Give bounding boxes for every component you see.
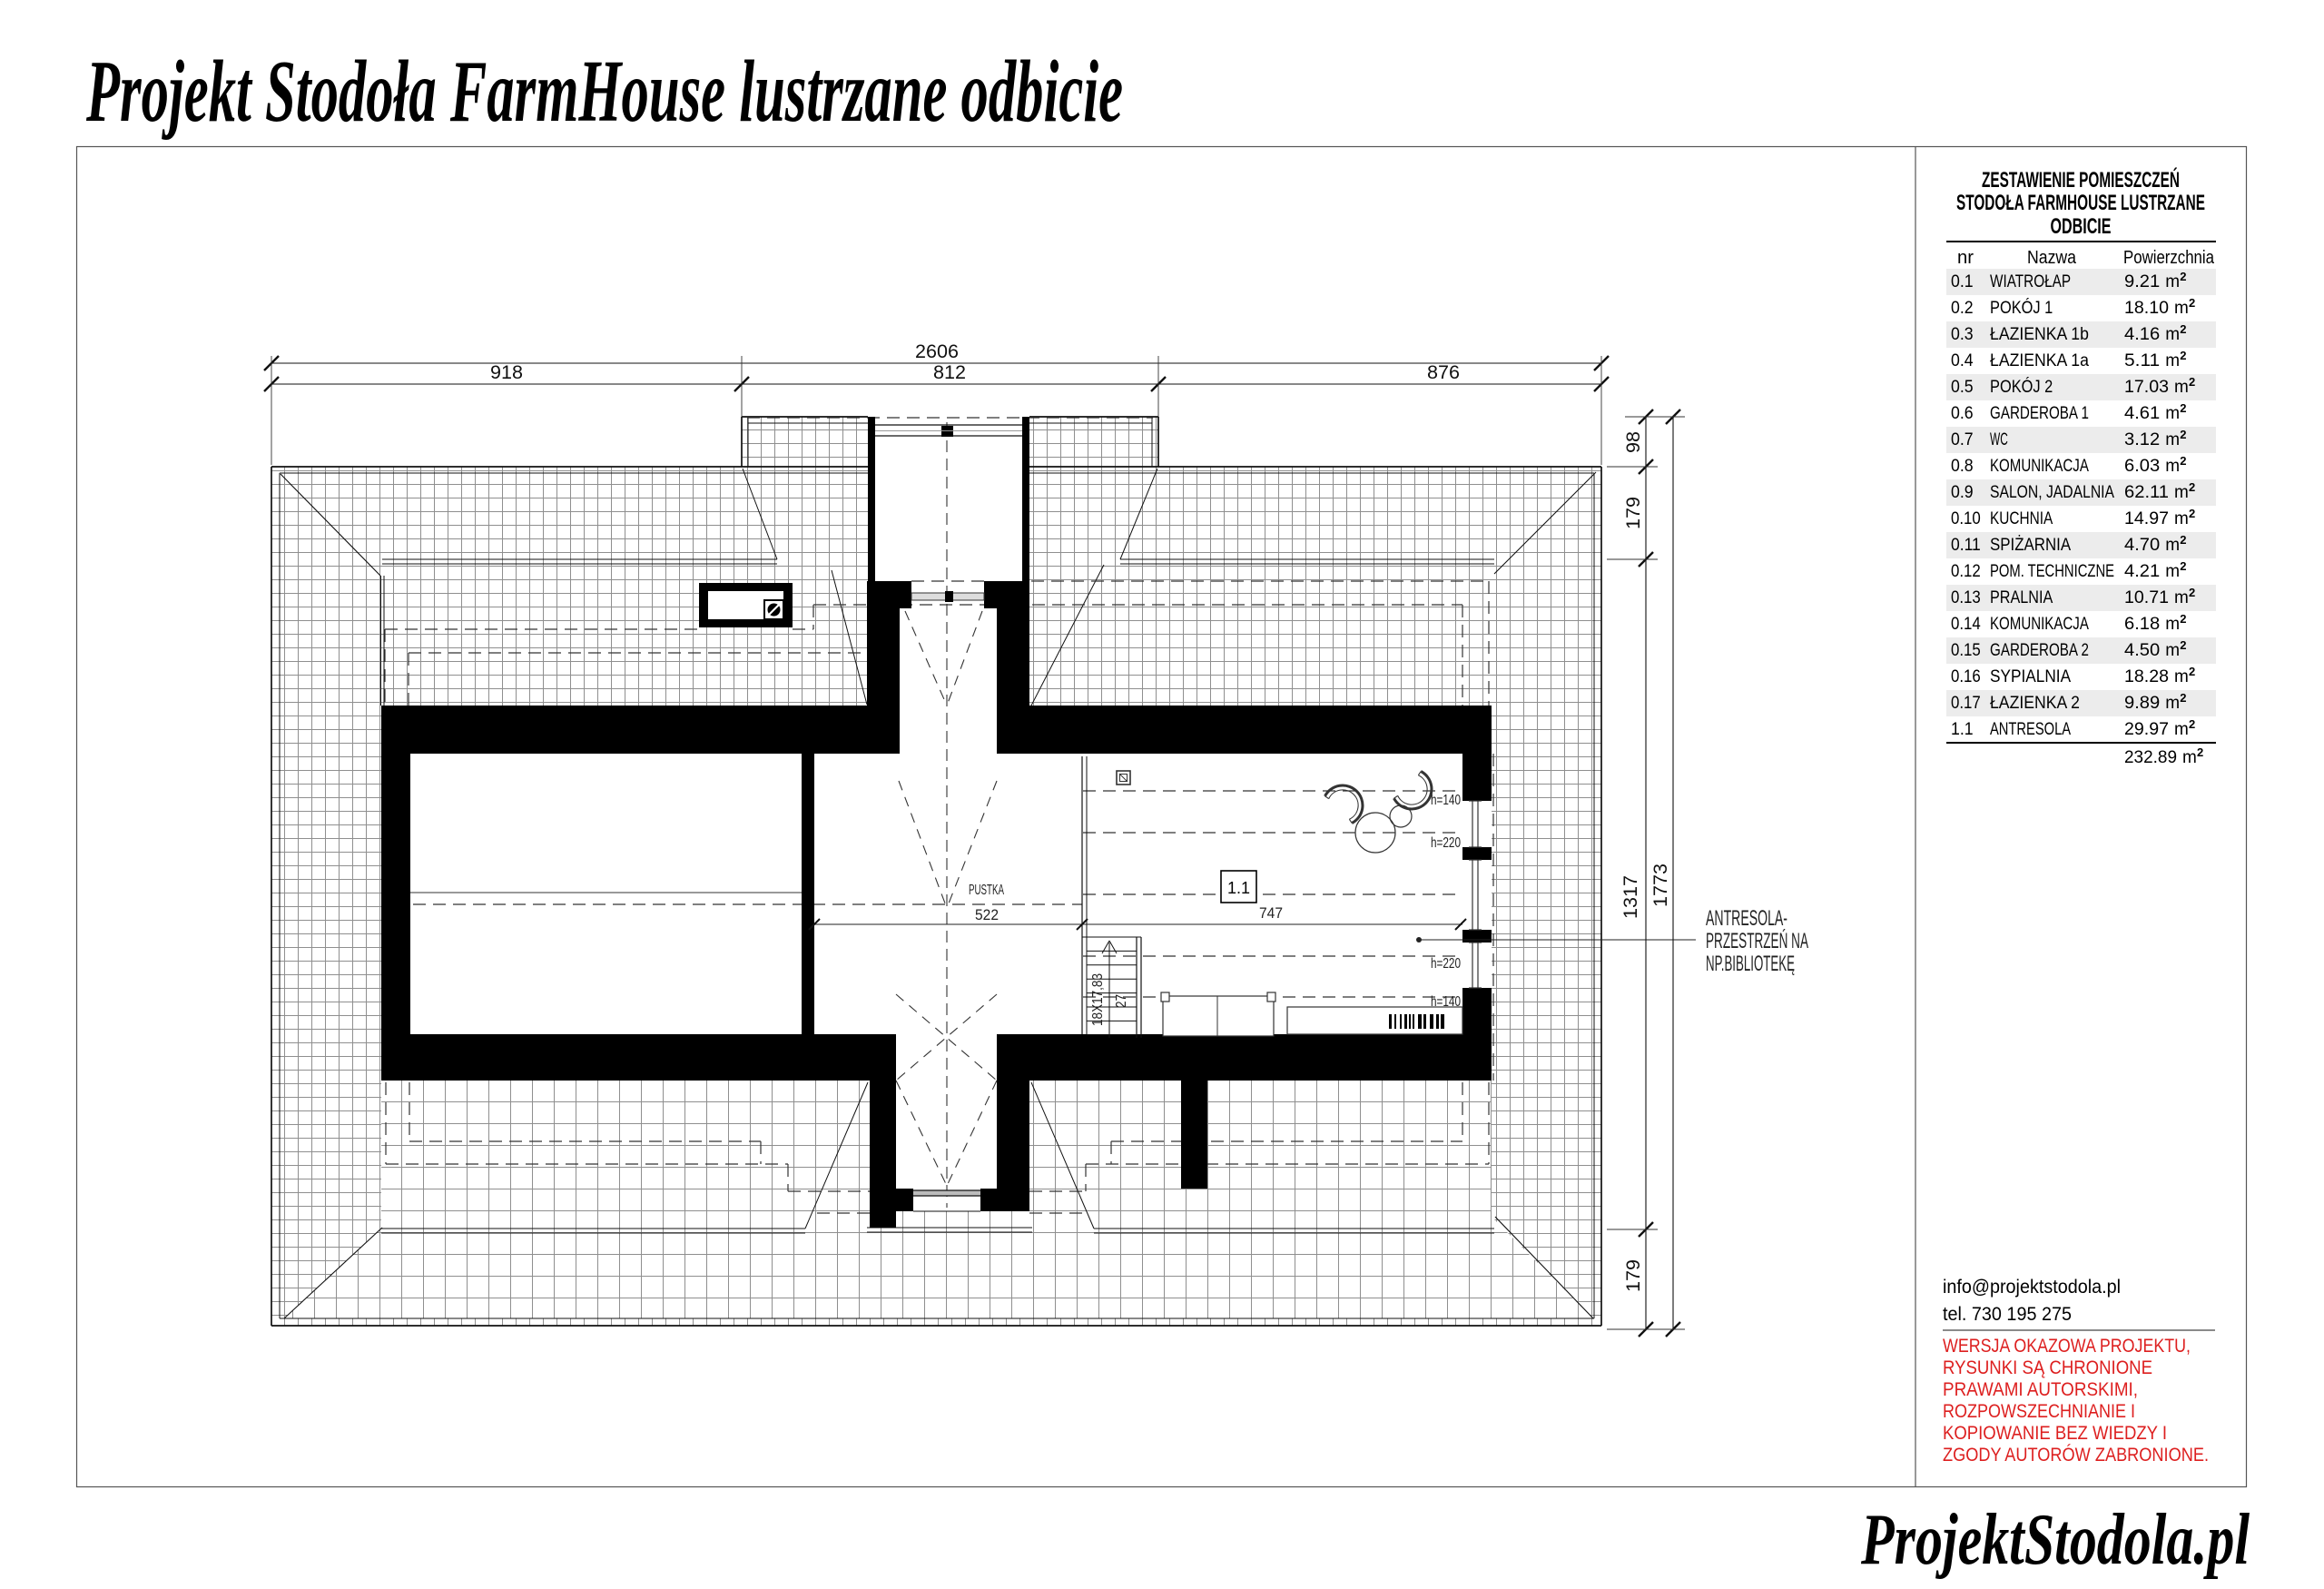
svg-text:9.89: 9.89 xyxy=(2124,694,2160,713)
svg-text:1.1: 1.1 xyxy=(1227,879,1250,897)
svg-text:2: 2 xyxy=(2189,480,2195,494)
svg-text:62.11: 62.11 xyxy=(2124,483,2169,502)
svg-text:KOMUNIKACJA: KOMUNIKACJA xyxy=(1990,457,2089,476)
svg-text:18.10: 18.10 xyxy=(2124,299,2169,318)
svg-text:2: 2 xyxy=(2180,322,2186,336)
svg-text:WC: WC xyxy=(1990,430,2008,449)
svg-text:2: 2 xyxy=(2180,454,2186,468)
svg-text:29.97: 29.97 xyxy=(2124,720,2169,739)
svg-text:NP.BIBLIOTEKĘ: NP.BIBLIOTEKĘ xyxy=(1706,952,1795,976)
svg-text:918: 918 xyxy=(490,362,523,383)
svg-text:ZESTAWIENIE POMIESZCZEŃ: ZESTAWIENIE POMIESZCZEŃ xyxy=(1982,167,2180,192)
svg-text:2: 2 xyxy=(2180,612,2186,626)
svg-text:179: 179 xyxy=(1623,497,1644,529)
svg-text:m: m xyxy=(2165,615,2180,634)
svg-text:522: 522 xyxy=(975,906,999,923)
svg-text:2: 2 xyxy=(2189,296,2195,310)
svg-text:PRZESTRZEŃ NA: PRZESTRZEŃ NA xyxy=(1706,929,1808,953)
svg-text:m: m xyxy=(2165,351,2180,370)
svg-text:tel. 730 195 275: tel. 730 195 275 xyxy=(1943,1304,2072,1325)
svg-text:PRALNIA: PRALNIA xyxy=(1990,588,2053,607)
svg-text:KOPIOWANIE BEZ WIEDZY I: KOPIOWANIE BEZ WIEDZY I xyxy=(1943,1423,2167,1444)
svg-text:info@projektstodola.pl: info@projektstodola.pl xyxy=(1943,1277,2121,1298)
svg-text:1317: 1317 xyxy=(1620,875,1641,919)
svg-text:2: 2 xyxy=(2180,428,2186,441)
svg-text:10.71: 10.71 xyxy=(2124,588,2169,607)
svg-text:WIATROŁAP: WIATROŁAP xyxy=(1990,272,2071,291)
svg-text:h=220: h=220 xyxy=(1431,956,1461,972)
svg-text:POKÓJ 1: POKÓJ 1 xyxy=(1990,298,2053,318)
svg-text:ROZPOWSZECHNIANIE I: ROZPOWSZECHNIANIE I xyxy=(1943,1401,2135,1422)
svg-text:179: 179 xyxy=(1623,1259,1644,1292)
svg-text:27: 27 xyxy=(1114,994,1129,1008)
svg-text:2: 2 xyxy=(2180,533,2186,547)
svg-text:2: 2 xyxy=(2189,665,2195,678)
svg-text:3.12: 3.12 xyxy=(2124,430,2160,449)
svg-text:2: 2 xyxy=(2180,638,2186,652)
svg-text:2: 2 xyxy=(2189,375,2195,389)
svg-text:0.4: 0.4 xyxy=(1951,351,1974,370)
svg-text:m: m xyxy=(2174,588,2189,607)
svg-text:0.16: 0.16 xyxy=(1951,667,1981,686)
svg-text:0.13: 0.13 xyxy=(1951,588,1981,607)
svg-text:6.03: 6.03 xyxy=(2124,457,2160,476)
svg-text:6.18: 6.18 xyxy=(2124,615,2160,634)
svg-text:SYPIALNIA: SYPIALNIA xyxy=(1990,667,2071,686)
svg-text:1.1: 1.1 xyxy=(1951,720,1974,739)
svg-text:876: 876 xyxy=(1427,362,1460,383)
svg-text:m: m xyxy=(2165,272,2180,291)
svg-text:Nazwa: Nazwa xyxy=(2027,248,2077,268)
svg-text:0.3: 0.3 xyxy=(1951,325,1974,344)
svg-text:2: 2 xyxy=(2189,586,2195,599)
svg-text:m: m xyxy=(2165,457,2180,476)
svg-text:Powierzchnia: Powierzchnia xyxy=(2123,248,2215,268)
svg-text:4.21: 4.21 xyxy=(2124,562,2160,581)
svg-text:GARDEROBA 2: GARDEROBA 2 xyxy=(1990,641,2089,660)
svg-text:0.2: 0.2 xyxy=(1951,299,1974,318)
svg-text:SPIŻARNIA: SPIŻARNIA xyxy=(1990,536,2071,555)
svg-text:0.12: 0.12 xyxy=(1951,562,1981,581)
svg-text:2: 2 xyxy=(2180,691,2186,705)
svg-text:5.11: 5.11 xyxy=(2124,351,2160,370)
svg-text:ANTRESOLA: ANTRESOLA xyxy=(1990,720,2071,739)
svg-text:h=140: h=140 xyxy=(1431,994,1461,1010)
svg-text:m: m xyxy=(2174,483,2189,502)
svg-text:PUSTKA: PUSTKA xyxy=(969,883,1004,898)
svg-text:2: 2 xyxy=(2180,349,2186,362)
svg-text:h=220: h=220 xyxy=(1431,835,1461,851)
svg-text:17.03: 17.03 xyxy=(2124,378,2169,397)
svg-text:KOMUNIKACJA: KOMUNIKACJA xyxy=(1990,615,2089,634)
svg-text:0.11: 0.11 xyxy=(1951,536,1981,555)
svg-text:0.15: 0.15 xyxy=(1951,641,1981,660)
svg-text:0.1: 0.1 xyxy=(1951,272,1974,291)
svg-text:232.89: 232.89 xyxy=(2124,748,2177,767)
svg-text:0.6: 0.6 xyxy=(1951,404,1974,423)
svg-text:2: 2 xyxy=(2189,717,2195,731)
svg-text:STODOŁA FARMHOUSE LUSTRZANE: STODOŁA FARMHOUSE LUSTRZANE xyxy=(1956,191,2205,215)
svg-text:ODBICIE: ODBICIE xyxy=(2051,214,2112,239)
svg-text:GARDEROBA 1: GARDEROBA 1 xyxy=(1990,404,2089,423)
svg-text:m: m xyxy=(2165,430,2180,449)
svg-text:0.10: 0.10 xyxy=(1951,509,1981,528)
svg-text:0.7: 0.7 xyxy=(1951,430,1974,449)
svg-text:SALON, JADALNIA: SALON, JADALNIA xyxy=(1990,483,2114,502)
svg-text:0.17: 0.17 xyxy=(1951,694,1981,713)
svg-text:Projekt Stodoła FarmHouse lus: Projekt Stodoła FarmHouse lustrzane odbi… xyxy=(85,43,1123,140)
svg-text:m: m xyxy=(2174,299,2189,318)
svg-text:nr: nr xyxy=(1957,248,1974,268)
svg-text:m: m xyxy=(2174,720,2189,739)
svg-text:2: 2 xyxy=(2197,745,2203,759)
svg-text:4.50: 4.50 xyxy=(2124,641,2160,660)
svg-text:9.21: 9.21 xyxy=(2124,272,2160,291)
svg-text:KUCHNIA: KUCHNIA xyxy=(1990,509,2053,528)
svg-text:0.9: 0.9 xyxy=(1951,483,1974,502)
svg-text:1773: 1773 xyxy=(1650,864,1671,907)
svg-text:18X17,83: 18X17,83 xyxy=(1090,973,1106,1026)
svg-text:m: m xyxy=(2182,748,2197,767)
svg-text:POM. TECHNICZNE: POM. TECHNICZNE xyxy=(1990,562,2114,581)
svg-text:98: 98 xyxy=(1623,431,1644,453)
svg-text:m: m xyxy=(2174,509,2189,528)
svg-text:m: m xyxy=(2165,562,2180,581)
svg-text:2: 2 xyxy=(2180,270,2186,283)
svg-text:POKÓJ 2: POKÓJ 2 xyxy=(1990,377,2053,397)
svg-text:h=140: h=140 xyxy=(1431,793,1461,808)
svg-text:m: m xyxy=(2174,378,2189,397)
svg-text:0.5: 0.5 xyxy=(1951,378,1974,397)
svg-text:ŁAZIENKA 1a: ŁAZIENKA 1a xyxy=(1990,351,2089,370)
svg-text:m: m xyxy=(2165,694,2180,713)
svg-text:m: m xyxy=(2165,641,2180,660)
svg-text:ANTRESOLA-: ANTRESOLA- xyxy=(1706,906,1787,931)
svg-text:2: 2 xyxy=(2180,401,2186,415)
svg-text:2: 2 xyxy=(2180,559,2186,573)
svg-text:ProjektStodola.pl: ProjektStodola.pl xyxy=(1860,1500,2250,1580)
svg-text:14.97: 14.97 xyxy=(2124,509,2169,528)
svg-text:0.8: 0.8 xyxy=(1951,457,1974,476)
svg-text:ŁAZIENKA 2: ŁAZIENKA 2 xyxy=(1990,694,2080,713)
svg-text:2: 2 xyxy=(2189,507,2195,520)
svg-text:4.61: 4.61 xyxy=(2124,404,2160,423)
svg-text:m: m xyxy=(2174,667,2189,686)
svg-text:m: m xyxy=(2165,404,2180,423)
svg-text:PRAWAMI AUTORSKIMI,: PRAWAMI AUTORSKIMI, xyxy=(1943,1379,2138,1400)
svg-text:RYSUNKI SĄ CHRONIONE: RYSUNKI SĄ CHRONIONE xyxy=(1943,1357,2152,1378)
svg-text:4.16: 4.16 xyxy=(2124,325,2160,344)
svg-text:4.70: 4.70 xyxy=(2124,536,2160,555)
svg-text:m: m xyxy=(2165,536,2180,555)
svg-text:747: 747 xyxy=(1259,904,1283,922)
svg-text:0.14: 0.14 xyxy=(1951,615,1981,634)
svg-text:ŁAZIENKA 1b: ŁAZIENKA 1b xyxy=(1990,325,2089,344)
svg-text:ZGODY AUTORÓW ZABRONIONE.: ZGODY AUTORÓW ZABRONIONE. xyxy=(1943,1445,2209,1466)
svg-text:WERSJA OKAZOWA PROJEKTU,: WERSJA OKAZOWA PROJEKTU, xyxy=(1943,1336,2191,1357)
svg-text:m: m xyxy=(2165,325,2180,344)
svg-text:18.28: 18.28 xyxy=(2124,667,2169,686)
svg-text:812: 812 xyxy=(933,362,966,383)
svg-text:2606: 2606 xyxy=(915,341,959,362)
